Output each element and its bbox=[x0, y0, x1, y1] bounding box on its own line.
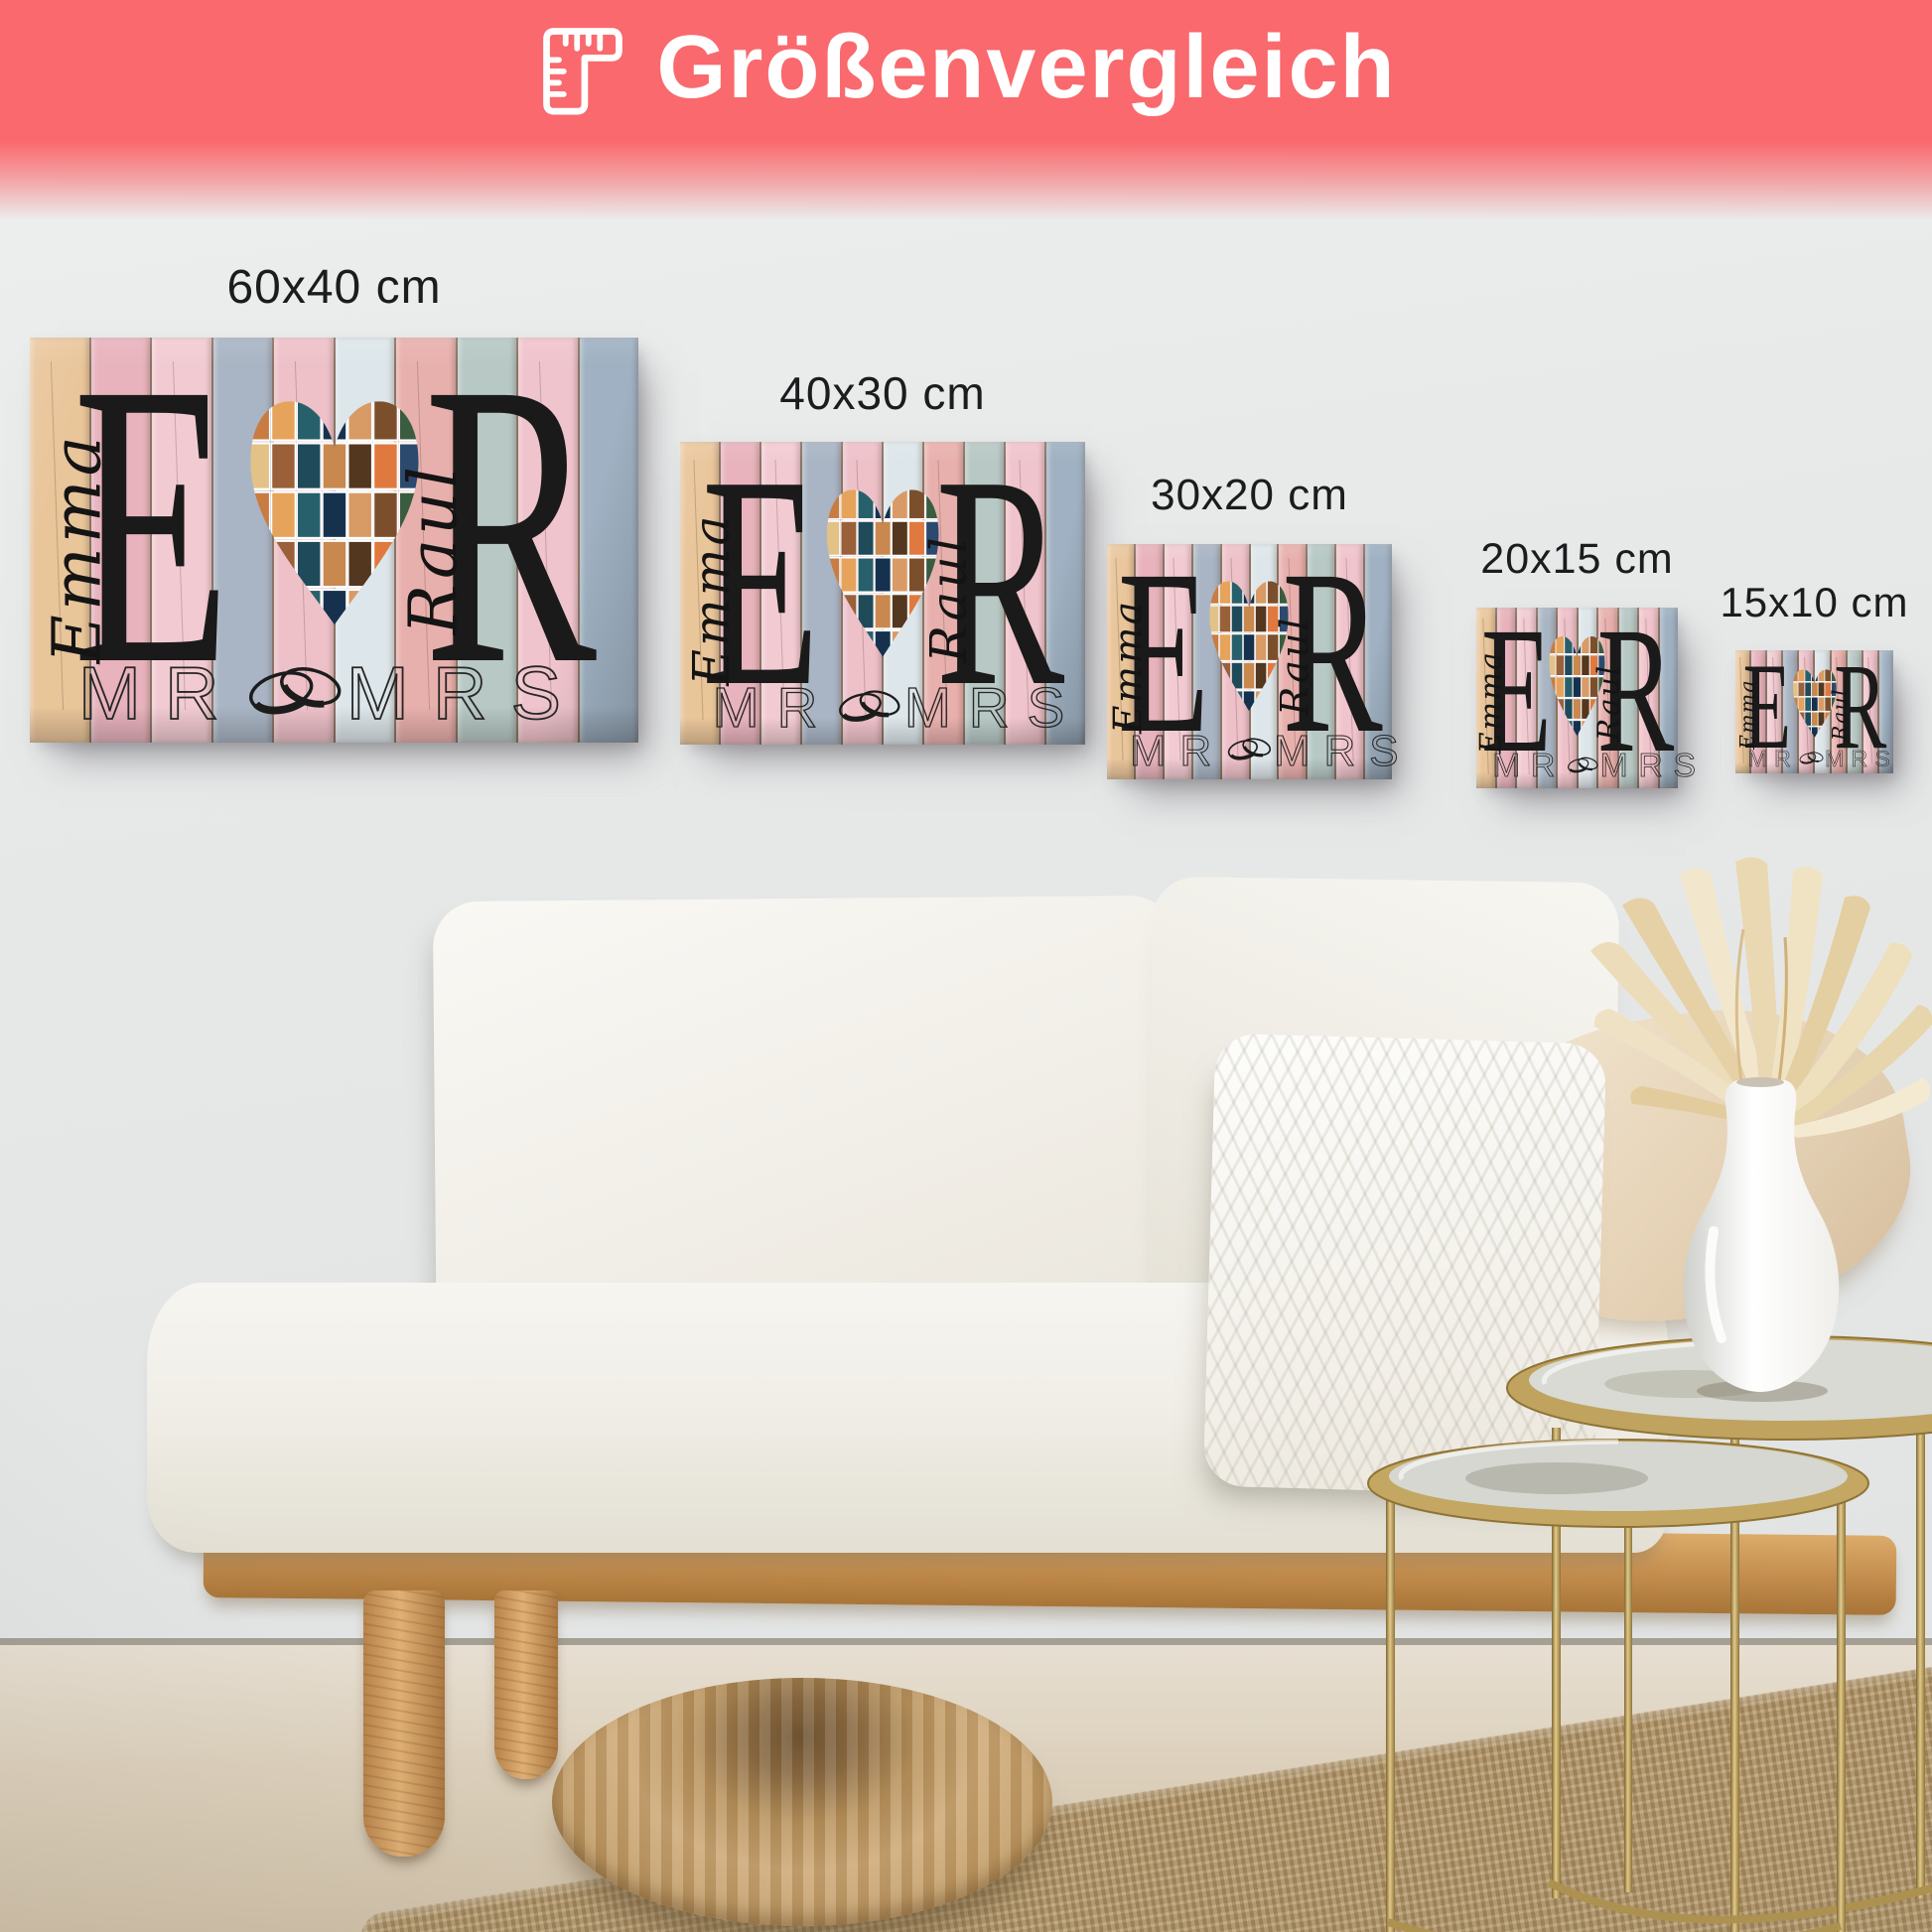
size-label: 30x20 cm bbox=[1151, 471, 1348, 520]
mr-mrs-row: MR MRS bbox=[78, 656, 578, 731]
size-label: 40x30 cm bbox=[779, 366, 985, 420]
mr-mrs-row: MR MRS bbox=[1130, 730, 1363, 773]
mr-label: MR bbox=[78, 656, 243, 731]
name-left: Emma bbox=[693, 517, 730, 681]
knit-pillow bbox=[1203, 1034, 1607, 1497]
wedding-rings-icon bbox=[243, 657, 346, 721]
sofa-leg-middle bbox=[494, 1590, 558, 1779]
canvas-print: E Emma R Raul MR MRS bbox=[680, 442, 1085, 745]
size-label: 60x40 cm bbox=[226, 260, 441, 315]
mr-label: MR bbox=[1492, 750, 1566, 783]
wedding-rings-icon bbox=[1566, 755, 1600, 775]
mrs-label: MRS bbox=[346, 656, 585, 731]
baseboard bbox=[0, 1638, 1932, 1645]
name-left: Emma bbox=[1116, 603, 1142, 730]
canvas-print: E Emma R Raul MR MRS bbox=[1735, 650, 1893, 773]
canvas-print: E Emma R Raul MR MRS bbox=[30, 338, 638, 743]
canvas-print: E Emma R Raul MR MRS bbox=[1107, 544, 1392, 779]
mr-mrs-row: MR MRS bbox=[1748, 748, 1877, 770]
mr-mrs-row: MR MRS bbox=[713, 680, 1045, 736]
canvas-print: E Emma R Raul MR MRS bbox=[1476, 608, 1678, 788]
mrs-label: MRS bbox=[1274, 730, 1413, 773]
mr-mrs-row: MR MRS bbox=[1492, 750, 1657, 783]
wedding-rings-icon bbox=[835, 683, 903, 726]
name-left: Emma bbox=[1482, 653, 1500, 751]
woven-pouf bbox=[552, 1678, 1052, 1926]
name-right: Raul bbox=[1833, 681, 1847, 748]
name-left: Emma bbox=[50, 439, 104, 657]
stage: 60x40 cm E Emma R Raul MR MRS bbox=[0, 0, 1932, 1932]
page-title: Größenvergleich bbox=[656, 19, 1396, 117]
name-right: Raul bbox=[406, 439, 461, 657]
name-right: Raul bbox=[930, 517, 967, 681]
size-label: 15x10 cm bbox=[1720, 579, 1908, 626]
mrs-label: MRS bbox=[1825, 748, 1897, 770]
mrs-label: MRS bbox=[904, 680, 1083, 736]
mr-label: MR bbox=[713, 680, 836, 736]
mrs-label: MRS bbox=[1600, 750, 1707, 783]
name-left: Emma bbox=[1740, 681, 1754, 748]
header: Größenvergleich bbox=[0, 16, 1932, 119]
sofa-leg-left bbox=[363, 1590, 445, 1857]
size-label: 20x15 cm bbox=[1480, 535, 1673, 584]
name-right: Raul bbox=[1283, 603, 1309, 730]
mr-label: MR bbox=[1130, 730, 1225, 773]
name-right: Raul bbox=[1600, 653, 1618, 751]
wedding-rings-icon bbox=[1798, 749, 1825, 765]
wedding-rings-icon bbox=[1225, 734, 1274, 763]
ruler-icon bbox=[535, 16, 630, 119]
mr-label: MR bbox=[1748, 748, 1798, 770]
